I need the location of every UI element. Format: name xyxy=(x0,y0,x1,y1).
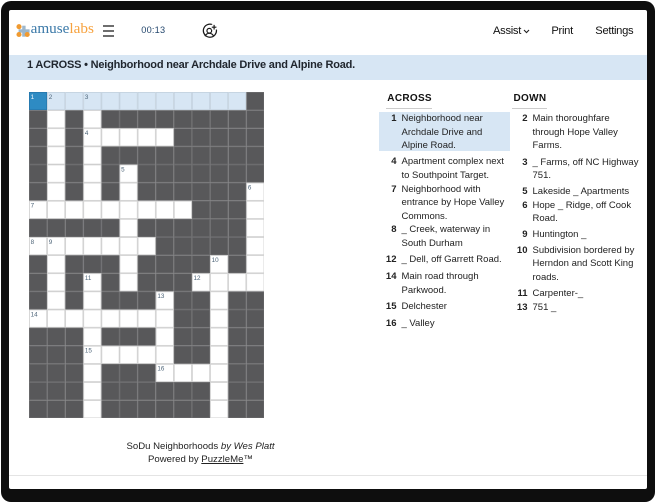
svg-text:3: 3 xyxy=(85,94,89,101)
svg-text:6: 6 xyxy=(248,184,252,191)
svg-text:1: 1 xyxy=(31,94,35,101)
svg-text:16: 16 xyxy=(157,366,164,373)
svg-text:5: 5 xyxy=(121,166,125,173)
svg-text:11: 11 xyxy=(85,275,92,282)
svg-text:4: 4 xyxy=(85,130,89,137)
svg-text:9: 9 xyxy=(49,239,53,246)
svg-text:7: 7 xyxy=(31,203,35,210)
svg-text:10: 10 xyxy=(212,257,219,264)
svg-text:2: 2 xyxy=(49,94,53,101)
svg-text:15: 15 xyxy=(85,348,92,355)
svg-text:14: 14 xyxy=(31,311,38,318)
svg-text:13: 13 xyxy=(157,293,164,300)
svg-text:12: 12 xyxy=(194,275,201,282)
svg-text:8: 8 xyxy=(31,239,35,246)
